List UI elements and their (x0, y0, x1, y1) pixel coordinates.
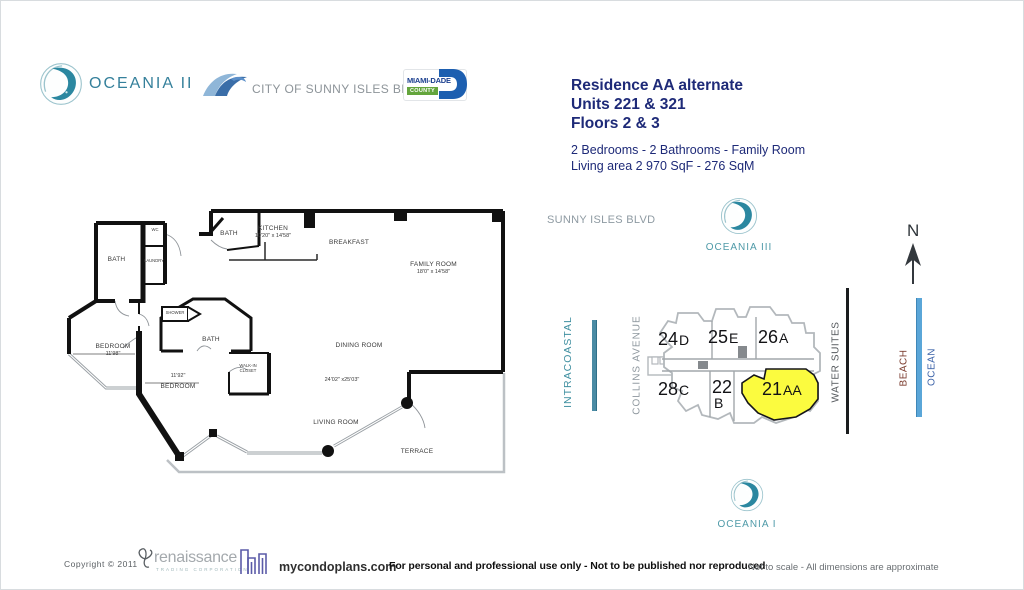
intracoastal-label: INTRACOASTAL (562, 316, 574, 408)
oceania-1-label: OCEANIA I (709, 519, 785, 530)
room-living-dim: 24'02" x25'03" (299, 367, 385, 387)
room-label-text: BATH (108, 256, 126, 263)
title-line-2: Units 221 & 321 (571, 95, 743, 114)
disclaimer-main: For personal and professional use only -… (389, 560, 765, 572)
water-suites-line (846, 288, 849, 434)
room-bath-left: BATH (89, 247, 144, 267)
oceania-logo-icon (39, 62, 83, 106)
room-bath-center: BATH (189, 327, 233, 347)
disclaimer-right: Not to scale - All dimensions are approx… (748, 562, 939, 573)
floorplan-drawing: BATH WC LAUNDRY BATH KITCHEN 10'20" x 14… (61, 196, 511, 481)
room-walkin-closet: WALK-IN CLOSET (231, 363, 265, 374)
room-family: FAMILY ROOM 18'0" x 14'58" (391, 261, 476, 276)
intracoastal-bar (592, 320, 597, 411)
room-terrace: TERRACE (385, 439, 449, 459)
subtitle-line-2: Living area 2 970 SqF - 276 SqM (571, 158, 805, 174)
renaissance-subtext: TRADING CORPORATION (156, 567, 249, 572)
renaissance-logo-icon (135, 546, 155, 575)
water-suites-label: WATER SUITES (831, 321, 842, 402)
room-kitchen: KITCHEN 10'20" x 14'58" (237, 225, 309, 240)
floorplan-page: OCEANIA II CITY OF SUNNY ISLES BEACH MIA… (0, 0, 1024, 590)
residence-title: Residence AA alternate Units 221 & 321 F… (571, 76, 743, 133)
title-line-3: Floors 2 & 3 (571, 114, 743, 133)
renaissance-wordmark: renaissance (154, 549, 237, 567)
copyright-text: Copyright © 2011 (64, 559, 138, 569)
north-arrow-icon (899, 242, 927, 291)
unit-28C: 28C (658, 379, 689, 400)
unit-26A: 26A (758, 327, 788, 348)
county-sub: COUNTY (407, 87, 438, 95)
unit-22B-letter: B (714, 395, 723, 413)
unit-25E: 25E (708, 327, 738, 348)
room-breakfast: BREAKFAST (311, 230, 387, 250)
ocean-label: OCEAN (927, 348, 938, 386)
room-shower: SHOWER (162, 310, 188, 315)
unit-24D: 24D (658, 329, 689, 350)
county-name: MIAMI-DADE (407, 76, 451, 85)
room-dining: DINING ROOM (317, 333, 401, 353)
ocean-bar (916, 298, 922, 417)
north-label: N (907, 221, 919, 241)
room-laundry: LAUNDRY (141, 258, 167, 263)
street-label-sunny-isles: SUNNY ISLES BLVD (547, 214, 655, 226)
oceania-1-logo-icon (730, 478, 764, 512)
beach-label: BEACH (899, 350, 910, 387)
miami-dade-logo: MIAMI-DADE COUNTY (403, 69, 467, 101)
collins-avenue-label: COLLINS AVENUE (632, 315, 643, 414)
room-bedroom-left: BEDROOM 11'98" (81, 343, 145, 358)
room-wc: WC (146, 227, 164, 232)
oceania-3-logo-icon (720, 197, 758, 235)
condoplans-text: mycondoplans.com (279, 560, 396, 574)
room-bedroom-center: 11'92" BEDROOM (146, 373, 210, 391)
wave-icon (201, 69, 249, 104)
oceania-3-label: OCEANIA III (701, 242, 777, 253)
subtitle-line-1: 2 Bedrooms - 2 Bathrooms - Family Room (571, 142, 805, 158)
brand-title: OCEANIA II (89, 75, 193, 93)
room-living: LIVING ROOM (293, 410, 379, 430)
residence-subtitle: 2 Bedrooms - 2 Bathrooms - Family Room L… (571, 142, 805, 174)
title-line-1: Residence AA alternate (571, 76, 743, 95)
condoplans-buildings-icon (239, 546, 271, 581)
unit-21AA-highlighted: 21AA (762, 379, 802, 400)
building-site-plan: 24D 25E 26A 28C 22 B 21AA (646, 299, 826, 431)
